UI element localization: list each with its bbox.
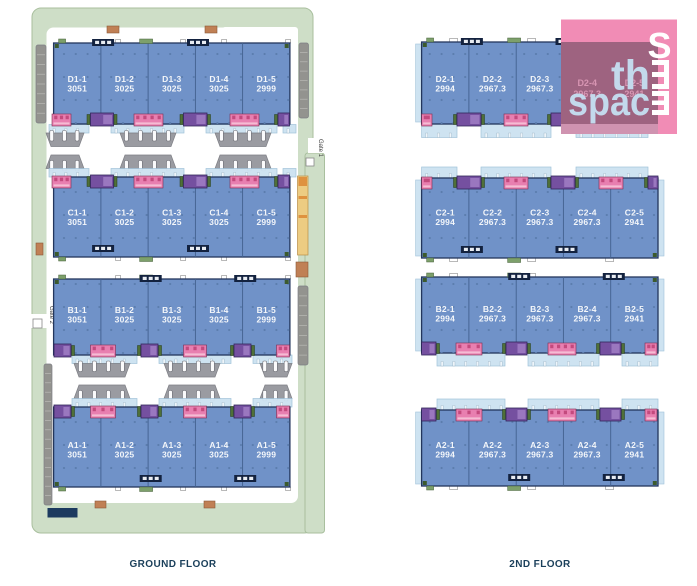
svg-text:C1-33025: C1-33025: [162, 207, 182, 227]
svg-text:A2-32967.3: A2-32967.3: [526, 440, 553, 460]
svg-text:B1-43025: B1-43025: [209, 305, 229, 325]
svg-text:C1-13051: C1-13051: [67, 207, 87, 227]
svg-text:B2-22967.3: B2-22967.3: [479, 304, 506, 324]
svg-text:B1-23025: B1-23025: [115, 305, 135, 325]
svg-text:A1-33025: A1-33025: [162, 440, 182, 460]
svg-text:D1-52999: D1-52999: [256, 74, 276, 94]
svg-text:C2-42967.3: C2-42967.3: [573, 207, 600, 227]
svg-text:A2-12994: A2-12994: [435, 440, 455, 460]
svg-text:C1-23025: C1-23025: [115, 207, 135, 227]
svg-text:C2-22967.3: C2-22967.3: [479, 207, 506, 227]
svg-text:A2-22967.3: A2-22967.3: [479, 440, 506, 460]
svg-text:A2-42967.3: A2-42967.3: [573, 440, 600, 460]
svg-text:B1-13051: B1-13051: [67, 305, 87, 325]
svg-text:D2-12994: D2-12994: [435, 74, 455, 94]
svg-text:B1-33025: B1-33025: [162, 305, 182, 325]
svg-text:spac: spac: [568, 80, 650, 124]
svg-text:C2-12994: C2-12994: [435, 207, 455, 227]
svg-text:C1-52999: C1-52999: [256, 207, 276, 227]
svg-text:C2-52941: C2-52941: [625, 207, 645, 227]
svg-text:A1-23025: A1-23025: [115, 440, 135, 460]
svg-text:2ND FLOOR: 2ND FLOOR: [509, 559, 571, 570]
svg-text:D2-22967.3: D2-22967.3: [479, 74, 506, 94]
svg-text:B2-52941: B2-52941: [625, 304, 645, 324]
svg-text:S: S: [647, 25, 671, 66]
svg-text:A1-13051: A1-13051: [67, 440, 87, 460]
svg-text:A2-52941: A2-52941: [625, 440, 645, 460]
svg-text:A1-43025: A1-43025: [209, 440, 229, 460]
svg-text:D1-13051: D1-13051: [67, 74, 87, 94]
svg-text:D1-33025: D1-33025: [162, 74, 182, 94]
svg-text:D1-43025: D1-43025: [209, 74, 229, 94]
svg-text:C1-43025: C1-43025: [209, 207, 229, 227]
svg-text:B2-32967.3: B2-32967.3: [526, 304, 553, 324]
svg-text:B2-12994: B2-12994: [435, 304, 455, 324]
svg-text:Gate 1: Gate 1: [317, 139, 323, 158]
svg-text:B2-42967.3: B2-42967.3: [573, 304, 600, 324]
svg-text:D2-32967.3: D2-32967.3: [526, 74, 553, 94]
svg-text:D1-23025: D1-23025: [115, 74, 135, 94]
svg-text:GROUND FLOOR: GROUND FLOOR: [129, 559, 216, 570]
svg-text:A1-52999: A1-52999: [256, 440, 276, 460]
svg-text:C2-32967.3: C2-32967.3: [526, 207, 553, 227]
svg-text:B1-52999: B1-52999: [256, 305, 276, 325]
